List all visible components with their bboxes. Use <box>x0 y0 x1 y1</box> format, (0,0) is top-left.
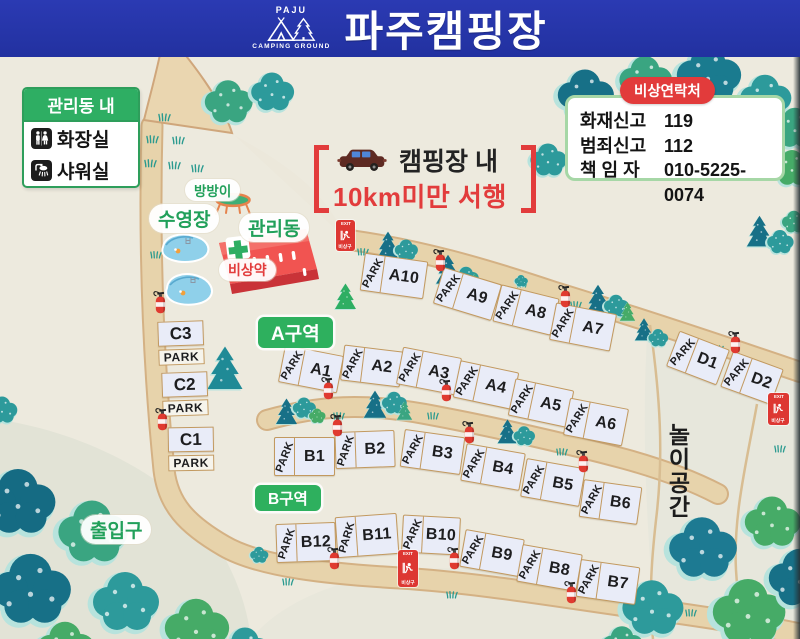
facility-item-label: 샤워실 <box>57 157 109 184</box>
emergency-row: 범죄신고112 <box>580 134 770 159</box>
exit-sign: EXIT 비상구 <box>398 550 418 587</box>
emergency-row: 화재신고119 <box>580 109 770 134</box>
park-label: PARK <box>168 455 214 472</box>
fire-extinguisher-icon <box>575 448 591 474</box>
fire-extinguisher-icon <box>727 329 743 355</box>
fire-extinguisher-icon <box>320 375 336 401</box>
campground-map-sign: PAJU CAMPING GROUND 파주캠핑장 관리동 내 화장실 <box>0 0 800 639</box>
camp-spot-c3: C3PARK <box>157 320 205 366</box>
grass-icon <box>169 162 180 169</box>
page-title: 파주캠핑장 <box>345 0 548 59</box>
speed-notice-line2: 10km미만 서행 <box>333 177 507 214</box>
camp-spot-b11: PARKB11 <box>335 513 400 558</box>
emergency-row: 책 임 자010-5225-0074 <box>580 158 770 207</box>
car-icon <box>336 147 388 173</box>
bracket-left <box>314 145 329 213</box>
running-man-icon <box>340 230 351 241</box>
shower-icon <box>31 160 52 181</box>
speed-notice: 캠핑장 내 10km미만 서행 <box>314 139 536 211</box>
playground-label: 놀이공간 <box>664 423 696 519</box>
admin-building-label: 관리동 <box>239 213 309 242</box>
bracket-right <box>521 145 536 213</box>
fire-extinguisher-icon <box>563 579 579 605</box>
zone-a-label: A구역 <box>258 317 333 348</box>
park-label: PARK <box>402 516 424 553</box>
facility-box-title: 관리동 내 <box>24 89 138 122</box>
camp-spot-b1: PARKB1 <box>274 437 335 476</box>
first-aid-label: 비상약 <box>219 259 276 281</box>
tent-tree-icon <box>266 16 316 43</box>
grass-icon <box>192 165 203 172</box>
grass-icon <box>173 137 184 144</box>
facility-item-toilet: 화장실 <box>24 122 138 154</box>
facility-item-shower: 샤워실 <box>24 154 138 186</box>
grass-icon <box>283 579 293 585</box>
fire-extinguisher-icon <box>461 419 477 445</box>
tree-icon <box>0 397 17 425</box>
park-label: PARK <box>158 348 205 366</box>
fire-extinguisher-icon <box>438 377 454 403</box>
park-label: PARK <box>276 524 297 562</box>
running-man-icon <box>773 403 784 414</box>
camp-spot-b6: PARKB6 <box>579 479 643 525</box>
tree-icon <box>206 347 243 391</box>
facility-item-label: 화장실 <box>57 125 109 152</box>
fire-extinguisher-icon <box>154 406 170 432</box>
running-man-icon <box>402 562 414 574</box>
restroom-icon <box>31 128 52 149</box>
sign-header: PAJU CAMPING GROUND 파주캠핑장 <box>0 0 800 57</box>
entrance-label: 출입구 <box>81 515 151 544</box>
trampoline-label: 방방이 <box>185 179 240 201</box>
fire-extinguisher-icon <box>432 247 448 273</box>
brand-logo-bottom: CAMPING GROUND <box>252 44 330 51</box>
zone-b-label: B구역 <box>255 485 321 511</box>
tree-icon <box>334 284 356 310</box>
exit-sign: EXIT 비상구 <box>768 393 789 425</box>
swimming-pool <box>162 234 212 304</box>
park-label: PARK <box>275 438 295 475</box>
facility-box: 관리동 내 화장실 샤워실 <box>22 87 140 188</box>
exit-sign: EXIT 비상구 <box>336 220 355 251</box>
fire-extinguisher-icon <box>326 545 342 571</box>
tree-icon <box>248 73 294 113</box>
emergency-contact-box: 화재신고119 범죄신고112 책 임 자010-5225-0074 <box>565 95 785 181</box>
brand-logo-top: PAJU <box>276 6 307 15</box>
pool-label: 수영장 <box>149 204 219 233</box>
speed-notice-line1: 캠핑장 내 <box>399 142 498 178</box>
fire-extinguisher-icon <box>446 545 462 571</box>
emergency-box-title: 비상연락처 <box>620 77 715 104</box>
photo-right-edge <box>793 57 800 639</box>
camp-spot-b7: PARKB7 <box>576 559 641 605</box>
brand-logo: PAJU CAMPING GROUND <box>252 6 330 51</box>
camp-spot-a2: PARKA2 <box>340 344 404 387</box>
camp-spot-c1: C1PARK <box>168 427 215 472</box>
fire-extinguisher-icon <box>557 283 573 309</box>
fire-extinguisher-icon <box>329 412 345 438</box>
fire-extinguisher-icon <box>152 289 168 315</box>
